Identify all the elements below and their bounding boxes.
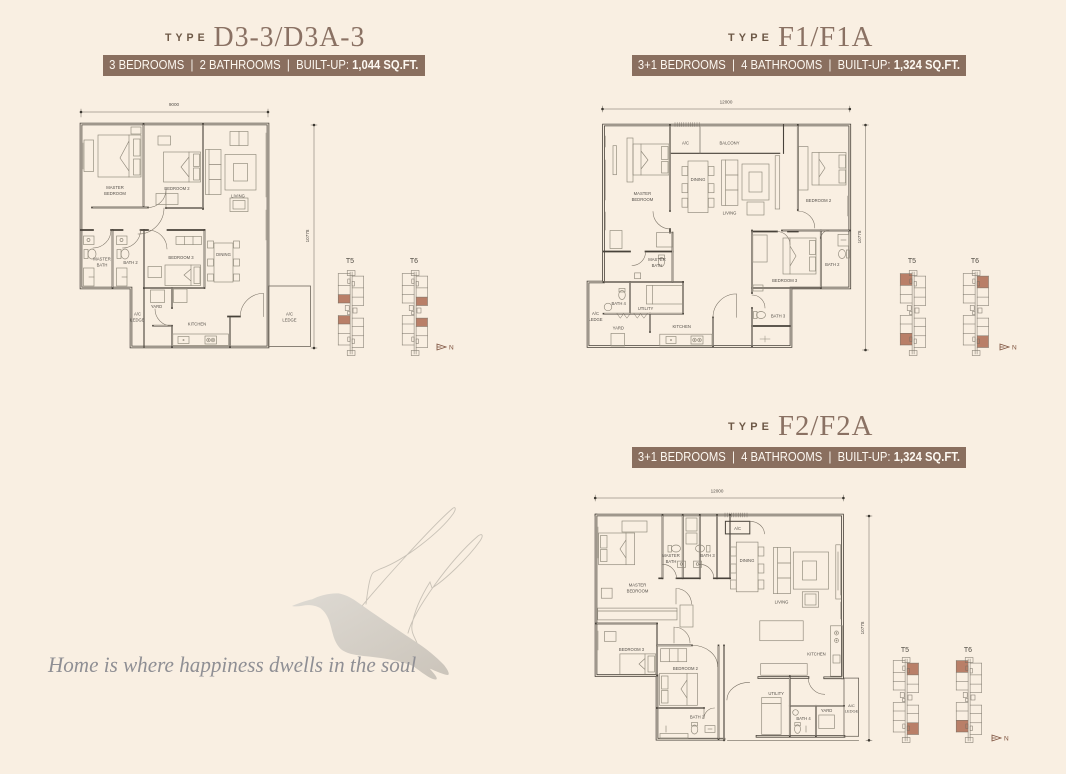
svg-text:DINING: DINING (740, 558, 755, 563)
svg-text:LEDGE: LEDGE (845, 709, 859, 714)
svg-text:MASTER: MASTER (648, 257, 665, 262)
svg-text:T5: T5 (346, 258, 354, 265)
svg-text:BATH 2: BATH 2 (123, 260, 138, 265)
svg-text:LEDGE: LEDGE (588, 317, 602, 322)
svg-text:9000: 9000 (169, 102, 180, 107)
svg-text:LIVING: LIVING (723, 211, 737, 216)
svg-text:12000: 12000 (711, 489, 724, 494)
svg-text:A/C: A/C (734, 526, 741, 531)
svg-text:DINING: DINING (216, 252, 231, 257)
svg-text:BATH 3: BATH 3 (700, 553, 715, 558)
svg-text:10778: 10778 (860, 621, 865, 634)
svg-text:YARD: YARD (613, 326, 624, 331)
svg-text:T6: T6 (971, 258, 979, 265)
svg-text:A/C: A/C (134, 312, 141, 317)
svg-text:BEDROOM: BEDROOM (632, 197, 654, 202)
svg-text:YARD: YARD (151, 304, 162, 309)
svg-text:BATH: BATH (97, 263, 108, 268)
svg-text:DINING: DINING (691, 177, 706, 182)
svg-text:YARD: YARD (821, 708, 832, 713)
svg-text:BEDROOM 3: BEDROOM 3 (772, 278, 798, 283)
svg-text:MASTER: MASTER (106, 185, 123, 190)
svg-text:KITCHEN: KITCHEN (807, 652, 825, 657)
svg-text:BEDROOM 3: BEDROOM 3 (168, 255, 194, 260)
svg-text:MASTER: MASTER (634, 191, 651, 196)
svg-text:UTILITY: UTILITY (768, 691, 784, 696)
svg-text:T6: T6 (964, 647, 972, 654)
svg-text:BEDROOM 3: BEDROOM 3 (619, 647, 645, 652)
svg-text:A/C: A/C (286, 312, 293, 317)
svg-text:UTILITY: UTILITY (638, 306, 654, 311)
svg-text:BALCONY: BALCONY (719, 141, 739, 146)
svg-text:MASTER: MASTER (629, 583, 646, 588)
svg-text:A/C: A/C (848, 703, 855, 708)
svg-text:10778: 10778 (305, 229, 310, 242)
svg-text:BATH: BATH (652, 263, 663, 268)
svg-text:BATH: BATH (666, 559, 677, 564)
svg-text:A/C: A/C (592, 311, 599, 316)
svg-text:LIVING: LIVING (231, 194, 245, 199)
svg-text:MASTER: MASTER (93, 257, 110, 262)
svg-text:T5: T5 (908, 258, 916, 265)
svg-text:10778: 10778 (857, 230, 862, 243)
svg-text:BEDROOM 2: BEDROOM 2 (673, 666, 699, 671)
svg-text:BATH 2: BATH 2 (825, 262, 840, 267)
svg-text:BATH 4: BATH 4 (612, 301, 627, 306)
svg-text:BATH 4: BATH 4 (796, 716, 811, 721)
svg-text:BEDROOM 2: BEDROOM 2 (806, 198, 832, 203)
svg-text:BATH 2: BATH 2 (690, 715, 705, 720)
svg-text:LEDGE: LEDGE (130, 318, 144, 323)
svg-text:LIVING: LIVING (775, 600, 789, 605)
svg-text:KITCHEN: KITCHEN (673, 324, 691, 329)
svg-text:BEDROOM: BEDROOM (627, 589, 649, 594)
svg-text:BATH 3: BATH 3 (771, 314, 786, 319)
svg-text:T5: T5 (901, 647, 909, 654)
svg-text:12000: 12000 (720, 100, 733, 105)
svg-text:T6: T6 (410, 258, 418, 265)
svg-text:MASTER: MASTER (662, 553, 679, 558)
svg-text:BEDROOM 2: BEDROOM 2 (164, 186, 190, 191)
svg-text:KITCHEN: KITCHEN (188, 322, 206, 327)
svg-text:A/C: A/C (682, 141, 689, 146)
svg-text:LEDGE: LEDGE (282, 318, 296, 323)
svg-text:BEDROOM: BEDROOM (104, 191, 126, 196)
